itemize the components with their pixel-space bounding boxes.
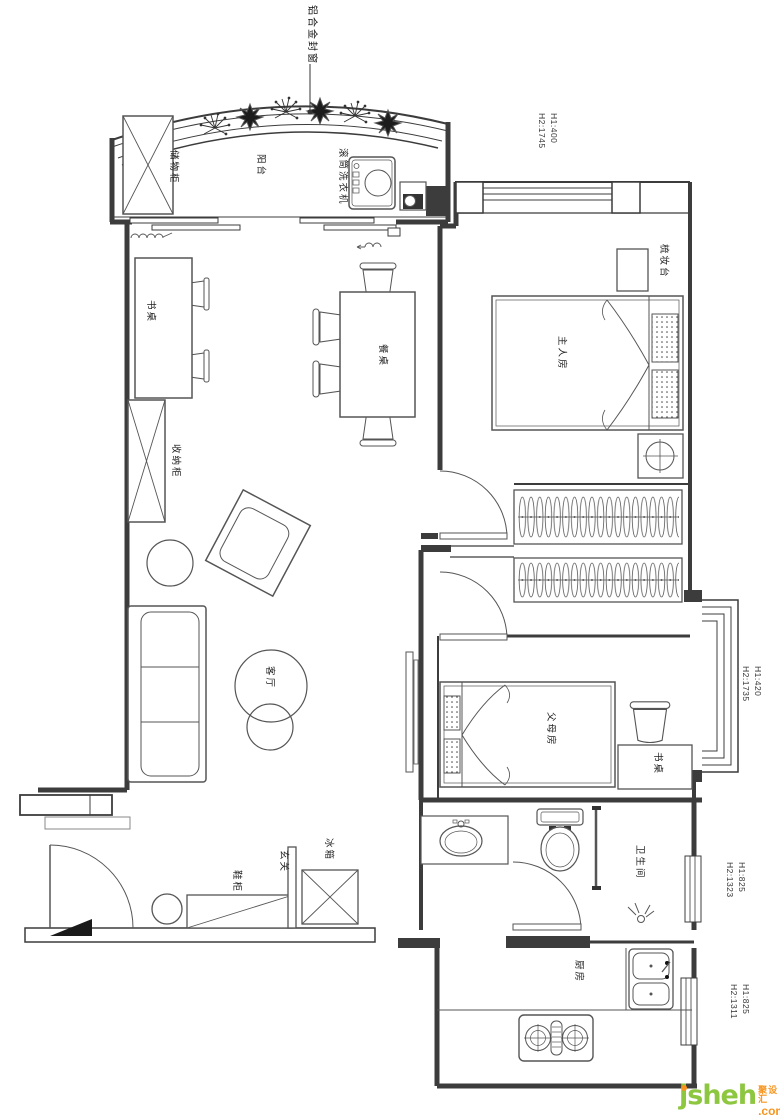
- label-parents-desk: 书桌: [651, 752, 662, 775]
- fridge: [302, 870, 358, 924]
- nightstand: [638, 434, 683, 478]
- dimension-label-4: H1:825H2:1311: [727, 984, 752, 1019]
- study-desk: [135, 258, 192, 398]
- label-storage-cabinet: 储物柜: [167, 150, 178, 185]
- label-shoe-cabinet: 鞋柜: [230, 870, 241, 893]
- shower-partition: [592, 806, 601, 890]
- dimension-label-2: H1:420H2:1735: [739, 666, 764, 702]
- logo-dot-icon: [681, 1085, 687, 1091]
- label-master-room: 主人房: [555, 336, 566, 371]
- study-dining-furniture: [128, 258, 415, 522]
- kitchen-sink: [629, 949, 673, 1009]
- label-dining-table: 餐桌: [376, 344, 387, 367]
- site-logo: jsheh 聚设汇 .com: [679, 1083, 780, 1116]
- label-entrance: 玄关: [277, 850, 288, 873]
- label-bathroom: 卫生间: [633, 845, 644, 880]
- floor-drain: [400, 182, 426, 210]
- label-fridge: 冰箱: [322, 838, 333, 861]
- shower-head-icon: [628, 903, 654, 923]
- sofa: [128, 606, 206, 782]
- label-aluminum-window: 铝合金封窗: [306, 5, 318, 65]
- kitchen-fixtures: [437, 948, 692, 1061]
- label-organizer-cabinet: 收纳柜: [169, 444, 180, 479]
- floor-plan-svg: [0, 0, 780, 1116]
- stove: [519, 1015, 593, 1061]
- entry-partition: [288, 847, 296, 928]
- shoe-cabinet: [187, 895, 293, 928]
- armchair: [206, 490, 311, 596]
- dimension-label-1: H1:400H2:1745: [535, 113, 560, 149]
- logo-chinese-text: 聚设汇: [758, 1086, 780, 1104]
- stool: [152, 894, 182, 924]
- parents-bed: [440, 682, 615, 787]
- toilet: [537, 809, 583, 871]
- coffee-table-small: [247, 704, 293, 750]
- bathroom-sink: [421, 816, 508, 864]
- label-balcony: 阳台: [254, 154, 265, 177]
- bathroom-fixtures: [421, 806, 654, 923]
- side-table: [147, 540, 193, 586]
- dimension-label-3: H1:825H2:1323: [723, 862, 748, 898]
- organizer-cabinet: [128, 400, 165, 522]
- logo-latin-text: jsheh: [679, 1083, 756, 1109]
- label-parents-room: 父母房: [544, 712, 555, 747]
- label-kitchen: 厨房: [572, 960, 583, 983]
- floor-plan-page: 铝合金封窗 储物柜 阳台 滚筒洗衣机 书桌 餐桌 收纳柜 主人房 梳妆台 客厅 …: [0, 0, 780, 1116]
- dresser: [617, 249, 648, 291]
- tv-panel: [406, 652, 418, 772]
- label-study-desk: 书桌: [144, 300, 155, 323]
- logo-tld-text: .com: [758, 1105, 780, 1116]
- wardrobes: [514, 490, 682, 602]
- label-living-room: 客厅: [263, 666, 274, 689]
- washing-machine: [349, 157, 395, 209]
- living-room-furniture: [128, 490, 418, 782]
- master-bedroom-furniture: [492, 249, 683, 602]
- master-bed: [492, 296, 683, 430]
- label-dresser: 梳妆台: [657, 244, 668, 279]
- label-washing-machine: 滚筒洗衣机: [336, 148, 347, 206]
